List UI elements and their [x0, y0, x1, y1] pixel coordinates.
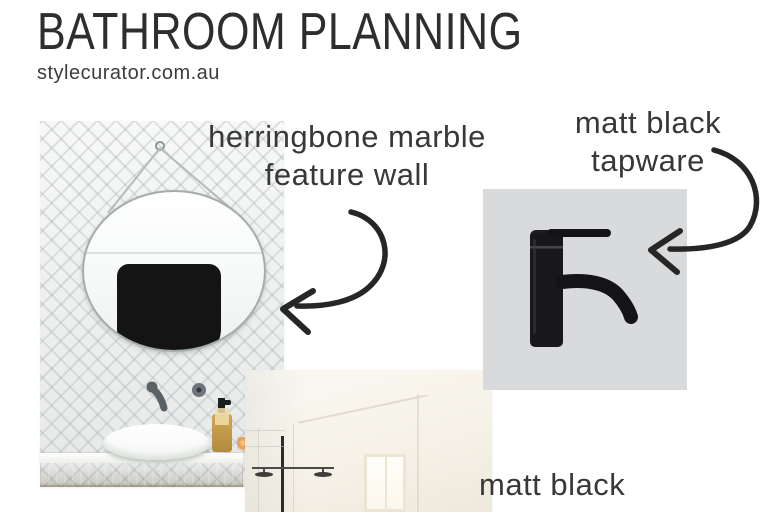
vessel-basin — [103, 424, 210, 460]
glass-panel-edge — [258, 428, 259, 512]
arrow-to-feature-wall-icon — [297, 212, 385, 306]
round-mirror — [82, 190, 266, 352]
soap-bottle-label — [215, 408, 229, 425]
mirror-reflection-line — [84, 252, 264, 254]
annotation-feature-wall: herringbone marble feature wall — [206, 118, 488, 195]
annotation-tapware-line2: tapware — [563, 142, 733, 180]
soap-bottle — [212, 398, 234, 453]
shelf-line — [245, 430, 285, 431]
annotation-tapware-line1: matt black — [563, 104, 733, 142]
window — [364, 454, 406, 512]
ceiling-line — [298, 394, 428, 423]
annotation-tapware: matt black tapware — [563, 104, 733, 181]
glass-shade — [245, 370, 305, 512]
shower-frame-line — [281, 436, 284, 512]
mirror-dark-reflection — [117, 264, 221, 352]
photo-bright-bathroom — [245, 370, 492, 512]
timber-vanity-shelf — [40, 463, 243, 487]
soap-nozzle — [223, 400, 231, 405]
moodboard-canvas: BATHROOM PLANNING stylecurator.com.au — [0, 0, 768, 512]
arrow-to-feature-wall-head-icon — [283, 291, 313, 332]
annotation-feature-wall-line2: feature wall — [206, 156, 488, 194]
window-mullion — [385, 457, 387, 509]
shower-head-icon — [255, 472, 273, 477]
wall-mixer-knob-center — [197, 388, 202, 393]
wall-spout-icon — [153, 389, 164, 408]
shower-head-icon — [314, 472, 332, 477]
site-url: stylecurator.com.au — [37, 62, 220, 85]
wall-corner-line — [417, 394, 419, 512]
black-tap-icon — [483, 189, 687, 390]
page-title: BATHROOM PLANNING — [37, 7, 523, 59]
shelf-line — [245, 446, 285, 447]
tapware-swatch — [483, 189, 687, 390]
annotation-feature-wall-line1: herringbone marble — [206, 118, 488, 156]
annotation-matt-black: matt black — [479, 466, 625, 504]
